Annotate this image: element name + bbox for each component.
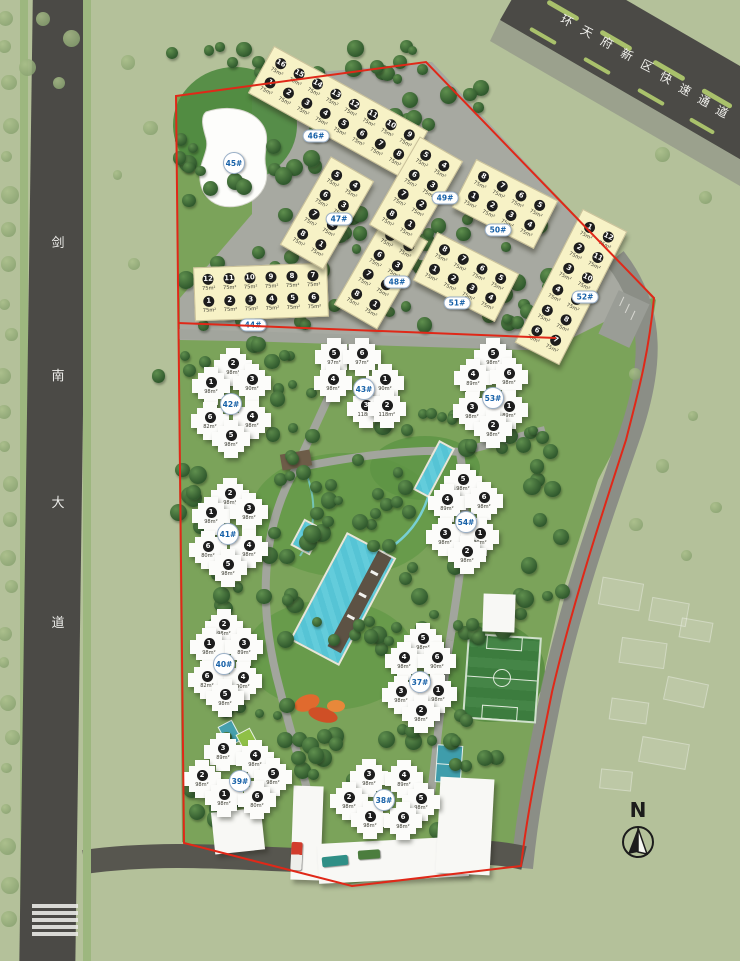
tree [268,527,281,540]
unit-info: 498m² [320,370,346,396]
tower-unit: 390m² [239,370,265,396]
unit-info: 489m² [460,365,486,391]
building-label-47: 47# [326,213,353,226]
unit-number: 6 [205,412,216,423]
tree [530,459,545,474]
unit-number: 5 [418,633,429,644]
tree [555,584,570,599]
unit-area: 98m² [226,370,240,375]
tree [544,481,560,497]
tree [353,226,368,241]
tree [533,513,547,527]
tree [440,86,458,104]
tower-unit: 298m² [480,416,506,442]
unit-info: 690m² [424,648,450,674]
tree [5,580,18,593]
tree [347,40,363,56]
tree [429,610,438,619]
tree [367,540,380,553]
unit-area: 75m² [285,283,299,289]
unit-number: 5 [223,559,234,570]
unit-info: 198m² [198,373,224,399]
unit-area: 75m² [306,282,320,288]
unit-cell: 1275m² [197,273,219,292]
unit-area: 98m² [245,423,259,428]
unit-area: 98m² [326,386,340,391]
tree [521,557,537,573]
unit-number: 2 [382,400,393,411]
crosswalk-stripe [32,911,78,915]
unit-number: 6 [432,652,443,663]
tree [308,769,319,780]
unit-cell: 1175m² [218,273,240,292]
building-label-43: 43# [353,378,375,400]
tree [279,350,290,361]
tree [264,354,279,369]
building-label-45: 45# [223,152,245,174]
tree [408,46,418,56]
community-building [482,593,515,632]
tree [352,514,368,530]
unit-number: 1 [203,296,214,307]
unit-number: 6 [308,292,319,303]
building-label-50: 50# [485,224,512,237]
tree [516,437,532,453]
building-label-54: 54# [455,511,477,533]
tree [266,427,281,442]
tree [352,244,361,253]
unit-info: 489m² [434,490,460,516]
unit-area: 98m² [224,442,238,447]
tree [523,478,541,496]
unit-number: 3 [244,503,255,514]
tree [516,590,534,608]
unit-number: 1 [380,374,391,385]
tree [0,441,10,452]
unit-area: 98m² [204,389,218,394]
unit-number: 2 [219,619,230,630]
tree [399,572,412,585]
unit-info: 398m² [236,499,262,525]
tower-unit: 698m² [471,488,497,514]
unit-number: 2 [197,770,208,781]
unit-number: 4 [442,494,453,505]
tree [183,162,195,174]
unit-number: 4 [328,374,339,385]
unit-area: 98m² [221,571,235,576]
unit-area: 98m² [414,717,428,722]
tree [528,426,537,435]
tree [393,55,407,69]
unit-area: 98m² [218,701,232,706]
unit-number: 3 [218,743,229,754]
tree [305,429,319,443]
tree [198,320,208,330]
building-label-53: 53# [482,387,504,409]
unit-area: 98m² [465,414,479,419]
unit-number: 5 [226,430,237,441]
tree [270,391,285,406]
unit-cell: 875m² [281,271,303,290]
unit-area: 75m² [202,286,216,292]
tree [275,167,293,185]
tree [300,319,311,330]
tower-unit: 298m² [454,542,480,568]
tree [143,121,158,136]
bus [358,849,381,860]
tree [0,627,12,641]
unit-area: 75m² [286,305,300,311]
unit-number: 6 [479,492,490,503]
unit-number: 2 [344,792,355,803]
tree [0,657,9,667]
building-label-44: 44# [240,319,267,332]
tree [303,150,320,167]
unit-area: 90m² [430,664,444,669]
west-road-name-char: 南 [49,365,67,384]
unit-area: 118m² [379,412,396,417]
unit-number: 5 [329,348,340,359]
unit-area: 98m² [394,698,408,703]
tree [0,40,11,53]
unit-number: 1 [204,638,215,649]
tree [256,589,272,605]
unit-info: 498m² [391,648,417,674]
unit-cell: 975m² [260,271,282,290]
building-label-52: 52# [572,291,599,304]
unit-area: 98m² [202,650,216,655]
unit-number: 5 [220,689,231,700]
unit-number: 2 [462,546,473,557]
unit-number: 10 [244,272,255,283]
tower-unit: 298m² [408,701,434,727]
unit-number: 2 [228,358,239,369]
unit-area: 98m² [342,804,356,809]
tower-unit: 498m² [320,370,346,396]
building-label-48: 48# [384,276,411,289]
site-plan-canvas: 剑 南 大 道 环 天 府 新 区 快 速 通 道 [0,0,740,961]
tower-unit: 398m² [236,499,262,525]
unit-number: 2 [488,420,499,431]
unit-number: 4 [399,652,410,663]
tower-unit: 2118m² [374,396,400,422]
tower-unit: 680m² [244,787,270,813]
unit-info: 2118m² [374,396,400,422]
tree [189,466,207,484]
unit-info: 389m² [210,739,236,765]
unit-number: 4 [468,369,479,380]
tree [215,42,224,51]
tree [152,369,165,382]
tree [252,246,265,259]
unit-area: 98m² [460,558,474,563]
unit-number: 5 [488,348,499,359]
west-road-name-char: 道 [49,612,67,631]
unit-area: 98m² [397,664,411,669]
tower-unit: 697m² [349,344,375,370]
tree [417,317,433,333]
tree [656,459,669,472]
unit-area: 75m² [243,285,257,291]
west-road-name-char: 剑 [49,232,67,251]
unit-area: 98m² [502,380,516,385]
tree [203,181,218,196]
unit-number: 12 [202,274,213,285]
tree [53,77,65,89]
building-label-41: 41# [217,523,239,545]
tree [401,301,412,312]
tower-unit: 198m² [357,807,383,833]
tree [710,502,721,513]
unit-number: 11 [223,273,234,284]
tree [629,518,642,531]
tree [182,194,195,207]
unit-info: 697m² [349,344,375,370]
unit-area: 98m² [266,780,280,785]
tree [382,539,396,553]
unit-number: 3 [239,638,250,649]
building-label-39: 39# [229,770,251,792]
tree [398,480,413,495]
unit-number: 2 [416,705,427,716]
crosswalk-stripe [32,918,78,922]
tree [465,439,478,452]
tree [463,88,477,102]
unit-info: 698m² [390,808,416,834]
unit-number: 7 [307,270,318,281]
compass-icon [618,822,658,862]
tree [36,12,50,26]
unit-area: 80m² [250,803,264,808]
unit-area: 75m² [223,307,237,313]
unit-cell: 775m² [302,270,324,289]
unit-cell: 175m² [198,295,220,314]
unit-number: 4 [247,411,258,422]
unit-number: 6 [203,541,214,552]
building-label-38: 38# [373,789,395,811]
unit-number: 8 [286,271,297,282]
tree [186,485,201,500]
unit-number: 2 [224,295,235,306]
tower-unit: 389m² [210,739,236,765]
unit-area: 90m² [236,684,250,689]
tree [195,166,205,176]
unit-area: 98m² [477,504,491,509]
retail-strip [436,777,495,876]
tree [279,698,295,714]
tree [19,59,36,76]
tree [393,467,403,477]
tree [3,512,18,527]
tower-unit: 489m² [460,365,486,391]
unit-area: 98m² [363,823,377,828]
unit-number: 4 [250,750,261,761]
unit-area: 75m² [307,304,321,310]
unit-number: 5 [268,768,279,779]
unit-area: 75m² [264,284,278,290]
tree [322,516,333,527]
unit-number: 1 [433,685,444,696]
tower-unit: 389m² [231,634,257,660]
unit-info: 698m² [496,364,522,390]
tower-unit: 598m² [215,555,241,581]
unit-number: 1 [475,528,486,539]
unit-area: 97m² [355,360,369,365]
tree [1,804,11,814]
unit-cell: 475m² [261,293,283,312]
unit-number: 9 [265,271,276,282]
unit-area: 80m² [201,553,215,558]
unit-number: 3 [364,769,375,780]
tree [553,529,569,545]
tree [466,618,479,631]
road-verge [83,0,91,961]
tower-unit: 690m² [424,648,450,674]
unit-area: 75m² [265,306,279,312]
tower-unit: 598m² [218,426,244,452]
tree [128,258,140,270]
unit-cell: 675m² [303,292,325,311]
unit-area: 98m² [414,805,428,810]
unit-area: 98m² [242,552,256,557]
unit-area: 89m² [397,782,411,787]
unit-area: 98m² [195,782,209,787]
unit-number: 3 [247,374,258,385]
unit-area: 75m² [244,307,258,313]
tree [213,587,229,603]
unit-cell: 275m² [219,295,241,314]
tree [177,271,195,289]
unit-area: 90m² [245,386,259,391]
unit-number: 1 [504,401,515,412]
tree [1,256,16,271]
tree [5,328,17,340]
tree [1,763,11,773]
tree [227,57,238,68]
playground-sculpture [327,700,345,712]
tower-unit: 698m² [496,364,522,390]
unit-number: 4 [399,770,410,781]
tower-unit: 198m² [198,373,224,399]
tree [291,751,305,765]
tree [63,30,80,47]
tree [384,636,394,646]
tree [278,208,293,223]
tree [417,64,427,74]
unit-area: 98m² [204,519,218,524]
unit-number: 4 [266,293,277,304]
building-label-46: 46# [303,130,330,143]
tree [0,550,16,566]
tree [325,479,337,491]
tower-unit: 598m² [212,685,238,711]
soccer-court [462,633,542,724]
tree [453,620,464,631]
unit-info: 598m² [212,685,238,711]
unit-cell: 375m² [240,294,262,313]
crosswalk-stripe [32,925,78,929]
unit-area: 75m² [222,285,236,291]
tree [407,562,418,573]
tree [364,629,379,644]
tree [352,454,364,466]
unit-number: 5 [287,293,298,304]
tree [1,222,16,237]
unit-number: 1 [365,811,376,822]
unit-info: 390m² [239,370,265,396]
building-label-49: 49# [432,192,459,205]
tree [391,622,402,633]
tree [175,463,189,477]
crosswalk-stripe [32,904,78,908]
unit-area: 98m² [486,432,500,437]
unit-number: 6 [504,368,515,379]
building-44: 1275m²1175m²1075m²975m²875m²775m²175m²27… [193,263,329,322]
tree [345,60,361,76]
tree [450,736,461,747]
unit-info: 298m² [408,701,434,727]
tree [1,877,18,894]
north-arrow: N [612,800,664,872]
tree [364,616,375,627]
tree [1,911,17,927]
tree [175,133,187,145]
unit-number: 2 [225,488,236,499]
unit-cell: 1075m² [239,272,261,291]
unit-info: 598m² [218,426,244,452]
truck [290,842,302,871]
tree [328,634,340,646]
unit-info: 680m² [244,787,270,813]
tower-unit: 498m² [391,648,417,674]
unit-info: 298m² [454,542,480,568]
tree [655,147,670,162]
unit-number: 1 [219,789,230,800]
unit-number: 3 [440,528,451,539]
unit-cell: 575m² [282,293,304,312]
tree [378,731,395,748]
unit-area: 82m² [203,424,217,429]
unit-info: 198m² [357,807,383,833]
tower-unit: 489m² [434,490,460,516]
unit-area: 98m² [396,824,410,829]
unit-number: 4 [244,540,255,551]
unit-area: 98m² [362,781,376,786]
unit-number: 3 [467,402,478,413]
unit-row: 175m²275m²375m²475m²575m²675m² [198,292,325,314]
building-label-40: 40# [213,653,235,675]
unit-area: 89m² [216,755,230,760]
building-label-37: 37# [409,671,431,693]
tree [308,747,325,764]
tree [285,471,294,480]
tower-unit: 698m² [390,808,416,834]
unit-area: 89m² [237,650,251,655]
unit-number: 6 [357,348,368,359]
unit-info: 598m² [215,555,241,581]
unit-info: 298m² [480,416,506,442]
unit-area: 98m² [242,515,256,520]
tree [279,549,295,565]
tree [473,102,483,112]
unit-number: 1 [206,377,217,388]
unit-number: 6 [252,791,263,802]
tree [1,75,17,91]
unit-number: 4 [238,672,249,683]
unit-area: 89m² [466,381,480,386]
unit-row: 1275m²1175m²1075m²975m²875m²775m² [197,270,324,292]
tree [296,465,311,480]
